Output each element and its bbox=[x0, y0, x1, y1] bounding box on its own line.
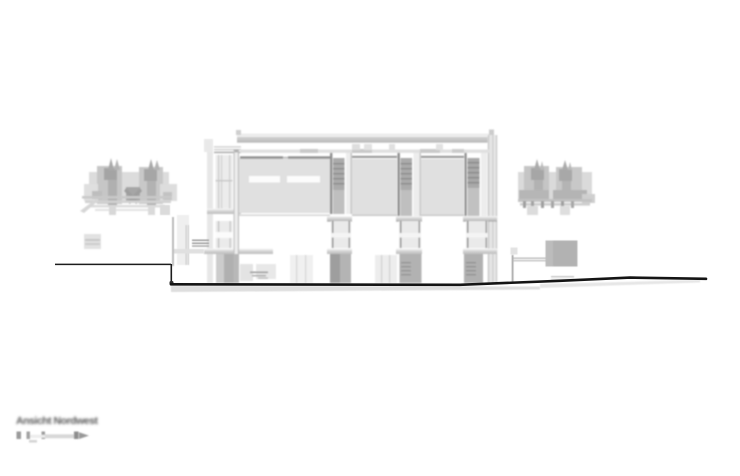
svg-text:Ansicht Nordwest: Ansicht Nordwest bbox=[16, 415, 99, 427]
